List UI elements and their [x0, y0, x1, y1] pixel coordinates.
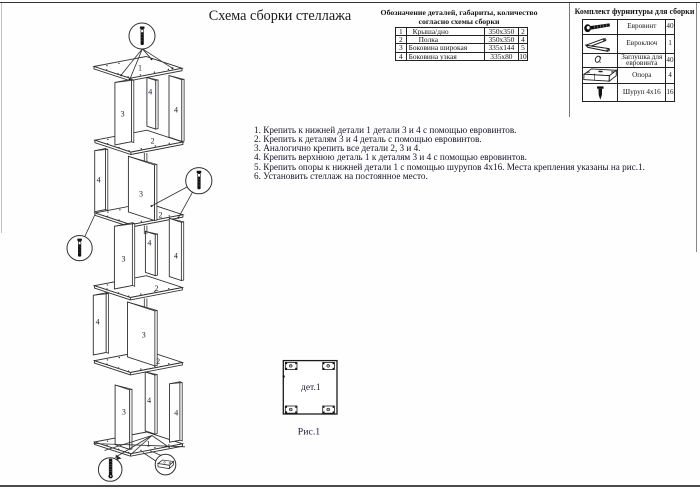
- svg-text:2: 2: [155, 284, 159, 293]
- svg-text:1: 1: [138, 64, 142, 73]
- svg-text:Рис.1: Рис.1: [298, 427, 320, 438]
- svg-text:4: 4: [147, 239, 151, 248]
- svg-text:2: 2: [159, 211, 163, 220]
- svg-text:4: 4: [174, 408, 178, 417]
- svg-text:3: 3: [139, 190, 143, 199]
- svg-text:дет.1: дет.1: [301, 383, 321, 393]
- svg-text:2: 2: [156, 357, 160, 366]
- svg-text:1: 1: [147, 440, 151, 449]
- svg-text:4: 4: [174, 106, 178, 115]
- svg-text:3: 3: [122, 255, 126, 264]
- svg-text:4: 4: [97, 176, 101, 185]
- svg-text:4: 4: [148, 88, 152, 97]
- svg-text:3: 3: [121, 110, 125, 119]
- svg-text:3: 3: [142, 330, 146, 339]
- svg-text:2: 2: [151, 137, 155, 146]
- svg-text:4: 4: [96, 318, 100, 327]
- svg-text:4: 4: [174, 252, 178, 261]
- svg-text:3: 3: [122, 407, 126, 416]
- svg-text:4: 4: [147, 396, 151, 405]
